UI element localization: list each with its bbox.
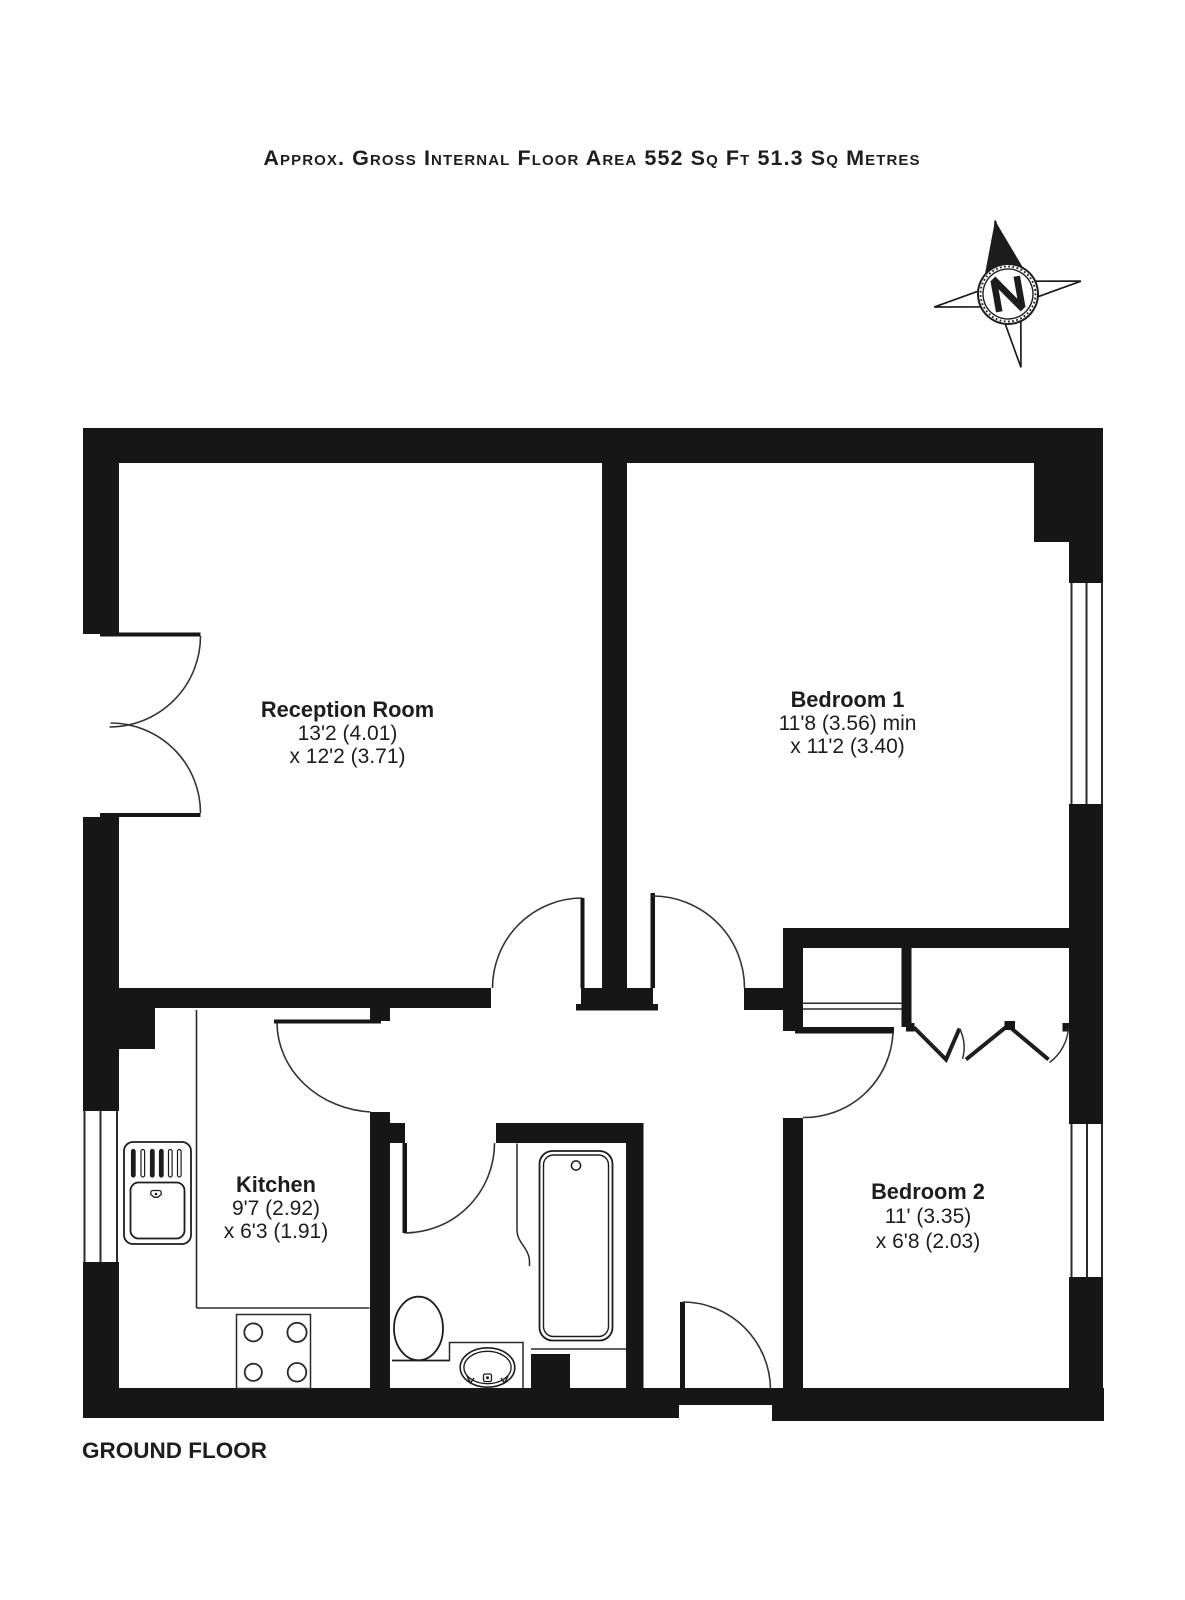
svg-text:Kitchen: Kitchen [236,1172,316,1197]
svg-text:Reception Room: Reception Room [261,697,434,722]
svg-text:13'2 (4.01): 13'2 (4.01) [298,722,398,745]
svg-text:x 6'3 (1.91): x 6'3 (1.91) [224,1220,328,1243]
svg-text:11'8 (3.56) min: 11'8 (3.56) min [779,712,917,735]
svg-text:9'7 (2.92): 9'7 (2.92) [232,1197,320,1220]
svg-text:x 6'8 (2.03): x 6'8 (2.03) [876,1230,980,1253]
svg-text:Approx. Gross Internal Floor A: Approx. Gross Internal Floor Area 552 Sq… [263,146,920,170]
svg-text:GROUND FLOOR: GROUND FLOOR [82,1438,267,1463]
svg-text:Bedroom 1: Bedroom 1 [791,687,905,712]
svg-text:Bedroom 2: Bedroom 2 [871,1179,985,1204]
svg-text:11' (3.35): 11' (3.35) [885,1205,972,1228]
svg-text:x 11'2 (3.40): x 11'2 (3.40) [790,735,905,758]
svg-text:x 12'2 (3.71): x 12'2 (3.71) [289,745,405,768]
